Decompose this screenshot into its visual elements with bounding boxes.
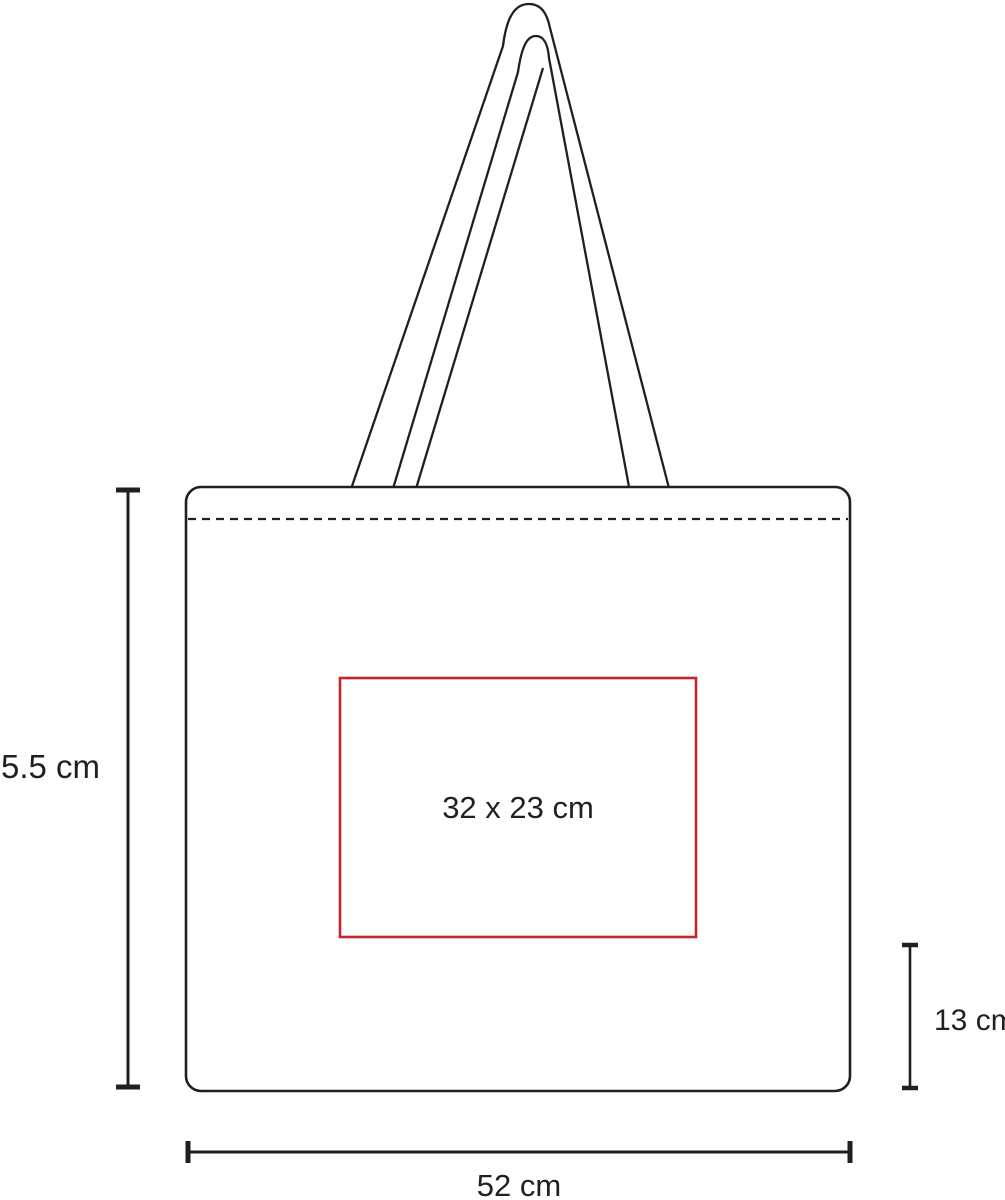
bag-drawing (116, 4, 918, 1163)
height-dimension-line (116, 490, 140, 1087)
print-area-label: 32 x 23 cm (442, 790, 594, 825)
diagram-svg: 35.5 cm 32 x 23 cm 52 cm 13 cm (0, 0, 1005, 1200)
bag-body-outline (186, 487, 850, 1091)
width-label: 52 cm (477, 1168, 561, 1200)
bag-handle-back (415, 68, 543, 492)
width-dimension-line (188, 1141, 850, 1163)
side-label: 13 cm (934, 1004, 1005, 1037)
bag-handle-front-outer (350, 4, 670, 492)
side-dimension-line (902, 945, 918, 1088)
tote-bag-dimension-diagram: 35.5 cm 32 x 23 cm 52 cm 13 cm (0, 0, 1005, 1200)
height-label: 35.5 cm (0, 748, 100, 785)
